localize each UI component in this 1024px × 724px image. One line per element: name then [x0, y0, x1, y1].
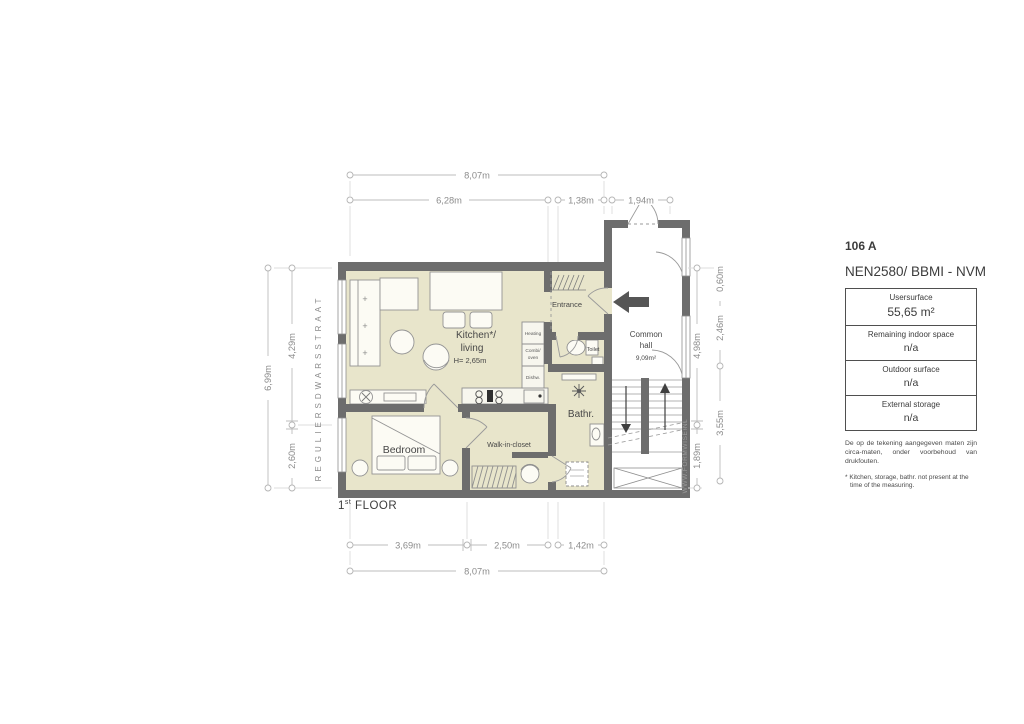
table-row: Usersurface 55,65 m²	[846, 289, 976, 325]
room-label-walk-in-closet: Walk-in-closet	[487, 442, 531, 449]
room-label-common-hall-area: 9,09m²	[636, 355, 657, 362]
room-label-bathroom: Bathr.	[568, 409, 594, 420]
dim-right-inner1: 4,98m	[692, 333, 702, 359]
toilet-sink	[592, 357, 603, 365]
shower-bar	[562, 374, 596, 380]
stool	[521, 465, 539, 483]
disclaimer-text: De op de tekening aangegeven maten zijn …	[845, 439, 977, 467]
appliance-label-combi-2: oven	[528, 356, 539, 361]
dim-right-outer1: 0,60m	[715, 266, 725, 292]
dim-bottom-seg3: 1,42m	[568, 541, 594, 551]
dim-left-total: 6,99m	[263, 365, 273, 391]
watermark: WWW.FORMWISE.NL	[682, 419, 689, 494]
table-row: Outdoor surface n/a	[846, 360, 976, 395]
unit-number: 106 A	[845, 239, 977, 253]
appliance-label-heating: Heating	[525, 331, 542, 337]
appliance-label-dishwasher: Dishw.	[526, 375, 540, 381]
table-row: Remaining indoor space n/a	[846, 325, 976, 360]
row-label: External storage	[848, 400, 974, 409]
dim-left-seg2: 2,60m	[287, 443, 297, 469]
room-label-bedroom: Bedroom	[383, 444, 426, 456]
floor-label: 1st FLOOR	[338, 499, 397, 512]
chaise	[380, 278, 418, 310]
dim-top-seg2: 1,38m	[568, 196, 594, 206]
nightstand	[442, 460, 458, 476]
dim-right-outer3: 3,55m	[715, 410, 725, 436]
dim-right-inner2: 1,89m	[692, 443, 702, 469]
pillow	[408, 456, 436, 470]
row-label: Outdoor surface	[848, 365, 974, 374]
measurement-standard: NEN2580/ BBMI - NVM	[845, 264, 977, 279]
nightstand	[352, 460, 368, 476]
dining-table	[430, 272, 502, 310]
room-label-toilet: Toilet	[587, 347, 600, 353]
room-label-kitchen-height: H= 2,65m	[454, 356, 487, 365]
street-name: REGULIERSDWARSSTRAAT	[314, 295, 323, 482]
plus-mark: +	[362, 321, 367, 331]
footnote-text: * Kitchen, storage, bathr. not present a…	[845, 474, 977, 492]
dining-chair	[443, 312, 465, 328]
plus-mark: +	[362, 294, 367, 304]
row-value: n/a	[848, 377, 974, 389]
row-value: 55,65 m²	[848, 305, 974, 319]
room-label-common-hall-2: hall	[640, 341, 653, 350]
dim-top-seg1: 6,28m	[436, 196, 462, 206]
room-label-kitchen-living-1: Kitchen*/	[456, 330, 496, 341]
room-label-common-hall-1: Common	[630, 330, 662, 339]
row-value: n/a	[848, 412, 974, 424]
room-label-entrance: Entrance	[552, 300, 582, 309]
dim-left-seg1: 4,29m	[287, 333, 297, 359]
dim-top-seg3: 1,94m	[628, 196, 654, 206]
appliance-label-combi-1: Combi/	[525, 348, 541, 354]
table-row: External storage n/a	[846, 395, 976, 430]
lounge-chair	[390, 330, 414, 354]
lounge-chair	[423, 344, 449, 370]
floorplan-page: + + +	[0, 0, 1024, 724]
dim-bottom-seg2: 2,50m	[494, 541, 520, 551]
floor-word: FLOOR	[351, 500, 397, 512]
stove-center	[487, 390, 493, 402]
title-block: 106 A NEN2580/ BBMI - NVM Usersurface 55…	[845, 239, 977, 491]
surface-table: Usersurface 55,65 m² Remaining indoor sp…	[845, 288, 977, 431]
dining-chair	[470, 312, 492, 328]
dim-top-total: 8,07m	[464, 171, 490, 181]
pillow	[377, 456, 405, 470]
row-value: n/a	[848, 342, 974, 354]
shower-icon	[572, 384, 586, 398]
dim-right-outer2: 2,46m	[715, 315, 725, 341]
plus-mark: +	[362, 348, 367, 358]
room-label-kitchen-living-2: living	[461, 343, 484, 354]
row-label: Remaining indoor space	[848, 330, 974, 339]
washer-position	[566, 462, 588, 486]
row-label: Usersurface	[848, 293, 974, 302]
sofa-plus-marks: + + +	[362, 294, 367, 358]
dim-bottom-seg1: 3,69m	[395, 541, 421, 551]
floor-number: 1	[338, 500, 345, 512]
dim-bottom-total: 8,07m	[464, 567, 490, 577]
